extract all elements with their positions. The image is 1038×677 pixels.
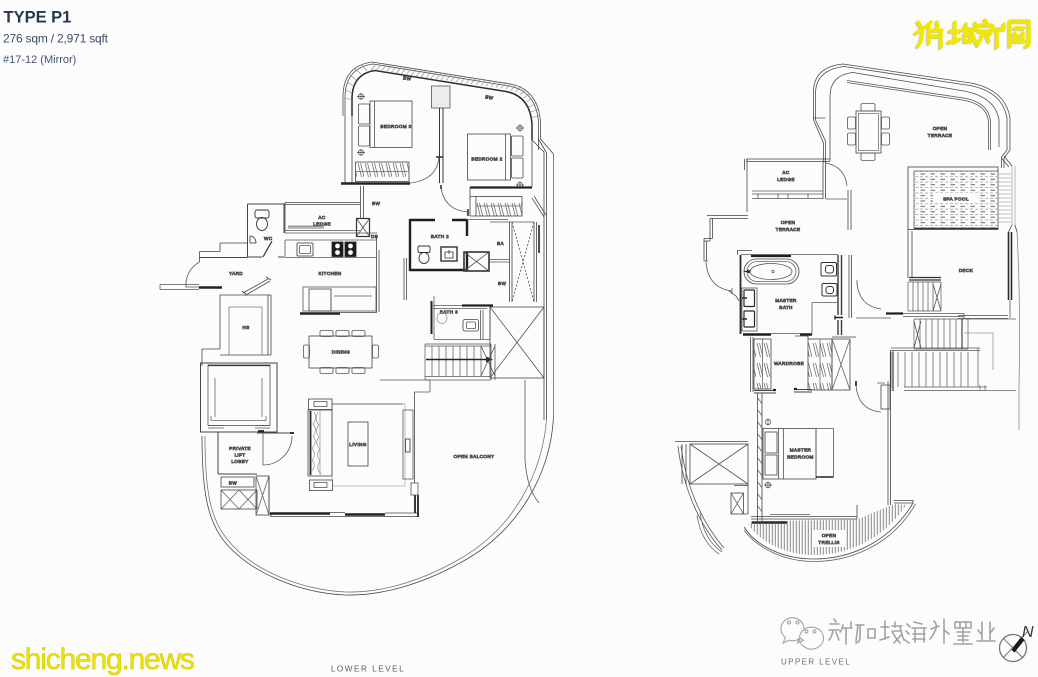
svg-text:LIVING: LIVING bbox=[349, 442, 366, 447]
svg-text:BATH 2: BATH 2 bbox=[431, 234, 449, 239]
svg-text:BA: BA bbox=[497, 241, 504, 246]
svg-text:BEDROOM 2: BEDROOM 2 bbox=[471, 157, 502, 162]
svg-text:BATH 3: BATH 3 bbox=[440, 310, 458, 315]
svg-text:LOBBY: LOBBY bbox=[231, 459, 248, 464]
svg-text:TERRACE: TERRACE bbox=[776, 227, 801, 232]
svg-text:LEDGE: LEDGE bbox=[777, 177, 795, 182]
svg-text:TRELLIS: TRELLIS bbox=[818, 540, 839, 545]
svg-text:LEDGE: LEDGE bbox=[313, 222, 331, 227]
svg-text:BATH: BATH bbox=[779, 305, 793, 310]
svg-text:276 sqm / 2,971 sqft: 276 sqm / 2,971 sqft bbox=[3, 32, 109, 46]
svg-text:SPA POOL: SPA POOL bbox=[943, 197, 969, 202]
svg-text:BW: BW bbox=[485, 94, 494, 101]
svg-text:MASTER: MASTER bbox=[790, 448, 812, 453]
svg-text:BEDROOM: BEDROOM bbox=[787, 455, 814, 460]
svg-text:LIFT: LIFT bbox=[234, 453, 245, 458]
svg-text:OPEN: OPEN bbox=[781, 220, 796, 225]
svg-text:OPEN: OPEN bbox=[822, 533, 837, 538]
svg-text:AC: AC bbox=[782, 170, 789, 175]
svg-text:#17-12 (Mirror): #17-12 (Mirror) bbox=[3, 54, 76, 66]
svg-text:shicheng.news: shicheng.news bbox=[11, 643, 194, 676]
svg-text:KITCHEN: KITCHEN bbox=[319, 271, 342, 276]
svg-text:DB: DB bbox=[371, 234, 378, 239]
svg-text:BEDROOM 3: BEDROOM 3 bbox=[380, 124, 411, 129]
svg-text:OPEN: OPEN bbox=[933, 126, 948, 131]
svg-text:N: N bbox=[1022, 624, 1034, 641]
svg-text:WC: WC bbox=[264, 236, 273, 241]
svg-text:BW: BW bbox=[403, 75, 412, 81]
svg-text:DINING: DINING bbox=[332, 350, 351, 355]
svg-text:OPEN BALCONY: OPEN BALCONY bbox=[453, 454, 494, 459]
svg-text:AC: AC bbox=[318, 215, 325, 220]
svg-text:TERRACE: TERRACE bbox=[928, 133, 953, 138]
svg-text:DECK: DECK bbox=[959, 268, 974, 273]
svg-text:TYPE P1: TYPE P1 bbox=[4, 9, 72, 27]
svg-text:PRIVATE: PRIVATE bbox=[229, 446, 251, 451]
svg-text:WARDROBE: WARDROBE bbox=[774, 361, 804, 366]
svg-text:LOWER LEVEL: LOWER LEVEL bbox=[331, 665, 405, 674]
svg-text:HS: HS bbox=[242, 325, 249, 330]
svg-text:BW: BW bbox=[372, 201, 380, 206]
svg-text:MASTER: MASTER bbox=[775, 298, 797, 303]
svg-text:BW: BW bbox=[498, 281, 506, 286]
svg-text:UPPER LEVEL: UPPER LEVEL bbox=[781, 658, 851, 667]
svg-text:BW: BW bbox=[229, 481, 237, 486]
svg-text:YARD: YARD bbox=[229, 271, 243, 276]
